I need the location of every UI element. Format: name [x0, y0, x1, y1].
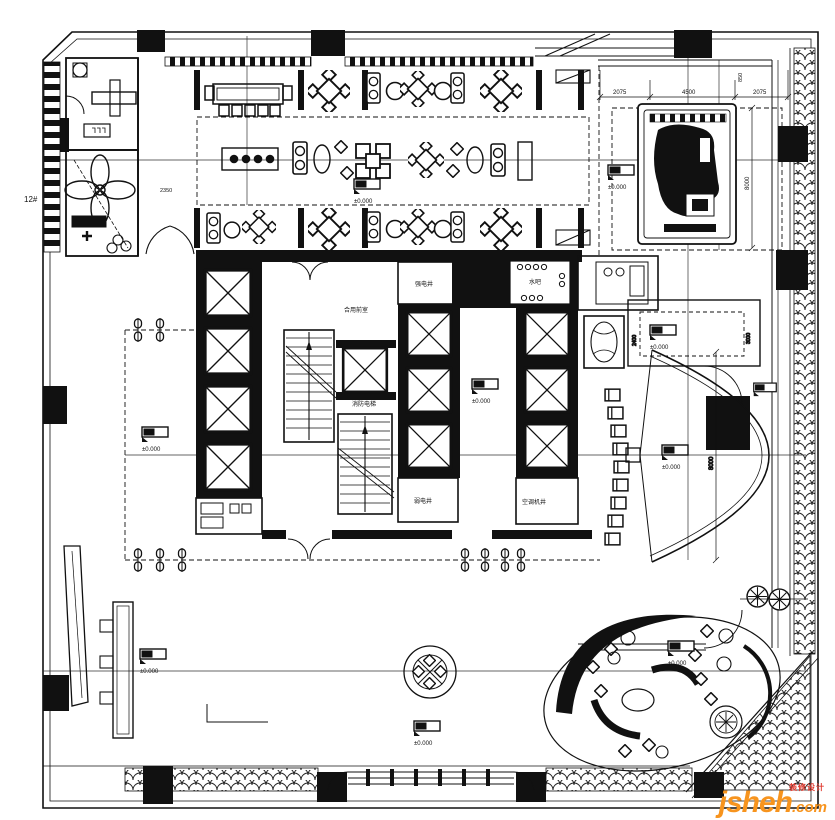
watermark-tld: .com [792, 799, 827, 816]
dim-right: 8000 [745, 176, 751, 190]
topleft-rooms [44, 58, 194, 256]
watermark: 装修设计jsheh.com [719, 788, 827, 818]
watermark-brand: jsheh [719, 786, 792, 819]
elevation-value: ±0.000 [414, 741, 433, 747]
elevation-value: ±0.000 [650, 345, 669, 351]
room-label-ac-shaft: 空调机井 [522, 498, 546, 506]
room-label-strong-elec: 强电井 [415, 280, 433, 288]
dim-top-d: 850 [738, 73, 744, 82]
room-label-water-bar: 水吧 [529, 278, 541, 286]
dim-room-w: 2400 [632, 335, 638, 346]
elevation-value: ±0.000 [668, 661, 687, 667]
elevation-value: ±0.000 [142, 447, 161, 453]
room-label-fire-elevator: 消防电梯 [352, 400, 376, 408]
entrance-plaza [64, 546, 534, 790]
elevation-value: ±0.000 [608, 185, 627, 191]
dim-room-h: 3000 [746, 333, 752, 344]
building-core: 合用前室 强电井 消防电梯 弱电井 水吧 空调机井 [196, 250, 592, 559]
room-label-weak-elec: 弱电井 [414, 497, 432, 505]
dim-top-a: 2075 [613, 90, 627, 96]
dim-top-c: 2075 [753, 90, 767, 96]
elevation-value: ±0.000 [662, 465, 681, 471]
dim-fan: 8000 [709, 456, 715, 470]
elevation-value: ±0.000 [354, 199, 373, 205]
room-label-shared-front: 合用前室 [344, 306, 368, 314]
watermark-tag: 装修设计 [789, 784, 825, 792]
floor-plan-canvas: 12# [0, 0, 835, 820]
dim-banquet: 2350 [160, 188, 172, 194]
unit-number-label: 12# [24, 195, 38, 204]
floor-plan-page: 12# [0, 0, 835, 820]
elevation-value: ±0.000 [472, 399, 491, 405]
banquet-hall [165, 57, 590, 252]
elevation-value: ±0.000 [140, 669, 159, 675]
dim-top-b: 4500 [682, 90, 696, 96]
